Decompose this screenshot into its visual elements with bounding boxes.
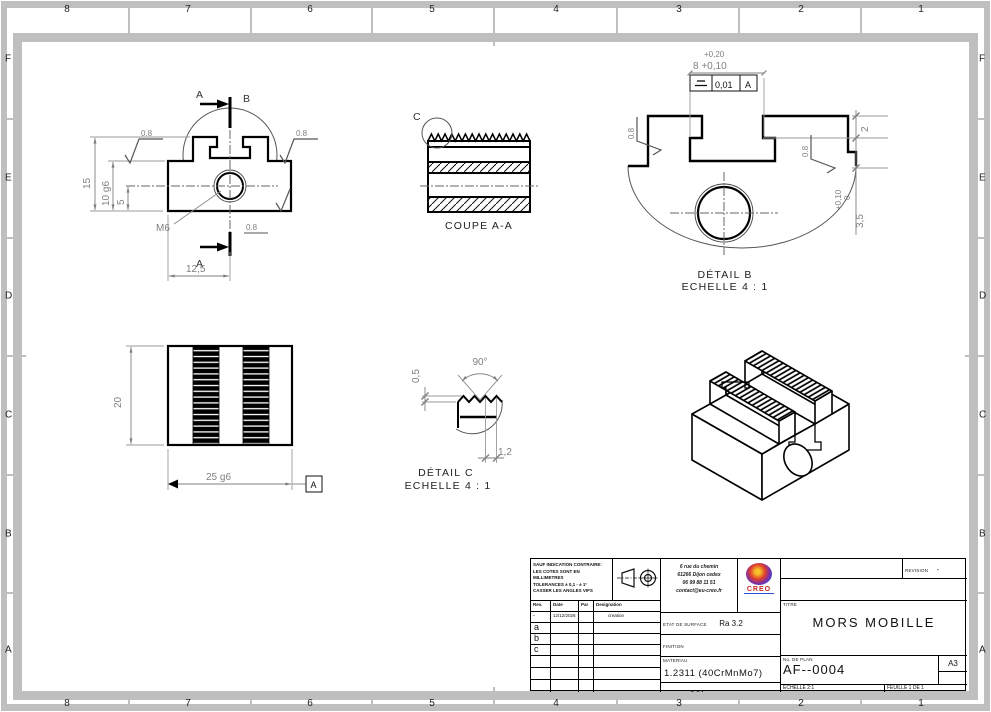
empty-cell [781,579,967,601]
serrated-band [193,347,219,444]
zone-number: 3 [676,4,682,15]
mass-cell: MASSE 0.04 [661,683,781,692]
rev-cell: 12/12/2026 [551,612,579,623]
logo-icon [746,563,772,585]
scale-cell: ECHELLE 2:1 [781,685,885,692]
zone-letter: D [979,291,986,302]
empty-cell [781,559,903,579]
view-coupe-aa: C COUPE A-A [400,100,575,240]
part-outline [168,346,292,445]
dim-12-5: 12,5 [186,264,206,275]
note-line: SAUF INDICATION CONTRAIRE: [533,562,610,569]
zone-number: 6 [307,698,313,709]
rev-cell [594,623,661,634]
company-line: 61266 Dijon cedex [661,571,737,579]
roughness-symbol: 0.8 [125,129,163,163]
rev-cell [531,680,551,692]
dim-12pitch: 1,2 [498,447,512,458]
zone-letter: A [979,645,986,656]
zone-letter: D [5,291,12,302]
view-scale-detail-c: ECHELLE 4 : 1 [405,480,492,492]
datum-triangle [168,480,178,489]
detail-c-label: C [413,111,421,123]
svg-text:0.8: 0.8 [246,223,258,232]
zone-letter: C [5,410,12,421]
rev-cell [594,634,661,645]
company-line: 06 99 88 11 51 [661,579,737,587]
rev-cell [594,656,661,668]
zone-number: 7 [185,698,191,709]
projection-symbol-cell [613,559,661,601]
dim-20: 20 [113,396,124,408]
svg-text:0.8: 0.8 [627,127,636,139]
view-detail-c: 90° 0,5 1,2 DÉTAIL C ECHELLE 4 : 1 [400,345,585,500]
mass-value: 0.04 [690,691,704,692]
serrated-band [243,347,269,444]
zone-letter: F [5,54,11,65]
rev-header: Date [551,601,579,612]
title-block: SAUF INDICATION CONTRAIRE: LES COTES SON… [530,558,966,691]
rev-cell: - [531,612,551,623]
material-label: MATERIAU [661,657,780,663]
datum-letter: A [311,480,317,490]
rev-cell [551,680,579,692]
zone-number: 6 [307,4,313,15]
zone-letter: A [5,645,12,656]
iso-part [692,351,849,500]
plan-cell: No. DE PLAN AF--0004 [781,656,939,685]
serration-profile [428,134,530,141]
zone-number: 3 [676,698,682,709]
rev-cell [551,656,579,668]
zone-number: 8 [64,4,70,15]
view-detail-b: +0,20 8 +0,10 0,01 A [600,40,900,300]
rev-cell: c [531,645,551,656]
dim-05: 0,5 [411,369,422,383]
material-cell: MATERIAU 1.2311 (40CrMnMo7) [661,657,781,683]
finish-cell: FINITION BRUNISSAGE [661,635,781,657]
zone-number: 7 [185,4,191,15]
rev-cell [551,668,579,680]
zone-number: 5 [429,4,435,15]
company-line: contact@eu-creo.fr [661,587,737,595]
company-line: 6 rue du chemin [661,563,737,571]
zone-letter: B [979,529,986,540]
hatch-band [428,197,530,211]
dim-25g6: 25 g6 [206,472,231,483]
rev-cell [531,668,551,680]
rev-cell [594,668,661,680]
feature-control-frame: 0,01 A [690,75,757,91]
surface-value: Ra 3.2 [719,619,743,628]
first-angle-projection-icon [613,559,659,599]
fcf-datum: A [745,80,751,90]
dim-35-tol-upper: +0,10 [834,189,843,210]
view-scale-detail-b: ECHELLE 4 : 1 [682,281,769,293]
rev-cell [579,623,594,634]
view-title-detail-c: DÉTAIL C [418,466,474,479]
svg-text:0.8: 0.8 [141,129,153,138]
rev-cell [579,668,594,680]
dim-35: 3,5 [855,214,866,228]
note-line: CASSER LES ANGLES VIFS [533,588,610,595]
rev-header: Rev. [531,601,551,612]
rev-cell [579,645,594,656]
revision-value: - [937,567,939,574]
logo-text: CREO [744,586,774,594]
dim-8: 8 +0,10 [693,61,727,72]
svg-text:0.8: 0.8 [296,129,308,138]
tolerance-notes: SAUF INDICATION CONTRAIRE: LES COTES SON… [531,559,613,601]
plan-number: AF--0004 [781,662,938,677]
rev-cell [551,623,579,634]
rev-cell: b [531,634,551,645]
zone-letter: E [5,173,12,184]
rev-cell [579,656,594,668]
zone-number: 4 [553,698,559,709]
thread-callout-m6: M6 [156,223,170,234]
title-cell: TITRE MORS MOBILLE [781,601,967,656]
rev-header: Par [579,601,594,612]
zone-number: 2 [798,4,804,15]
rev-header: Designation [594,601,661,612]
view-isometric [635,330,895,530]
note-line: LES COTES SONT EN MILLIMETRES [533,569,610,582]
zone-number: 5 [429,698,435,709]
zone-number: 4 [553,4,559,15]
title-label: TITRE [781,601,967,607]
surface-label: ETAT DE SURFACE [661,621,707,627]
extension-lines [486,398,497,463]
zone-number: 2 [798,698,804,709]
revision-cell: REVISION - [903,559,967,579]
dim-5: 5 [116,199,127,205]
revision-label: REVISION [903,567,928,573]
rev-cell [551,634,579,645]
rev-cell: creation [594,612,661,623]
sheet-cell: FEUILLE 1 DE 1 [885,685,967,692]
company-logo: CREO [738,559,781,613]
zone-number: 1 [918,698,924,709]
part-outline [628,116,856,166]
finish-label: FINITION [661,643,684,649]
rev-cell [579,680,594,692]
format-cell: A3 [939,656,967,672]
view-title-coupe: COUPE A-A [445,220,513,232]
dim-8-tol-upper: +0,20 [704,50,725,59]
zone-letter: F [979,54,985,65]
dim-2: 2 [860,126,871,132]
rev-cell [579,612,594,623]
dim-35-tol-lower: 0 [843,195,852,200]
dim-90deg: 90° [472,357,487,368]
zone-number: 8 [64,698,70,709]
serration-profile [458,396,502,402]
rev-cell [531,656,551,668]
zone-number: 1 [918,4,924,15]
company-info: 6 rue du chemin 61266 Dijon cedex 06 99 … [661,559,738,613]
zone-letter: B [5,529,12,540]
dim-10g6: 10 g6 [101,181,112,206]
drawing-title: MORS MOBILLE [781,615,967,630]
section-label-top: A [196,89,203,101]
rev-cell: a [531,623,551,634]
detail-b-label: B [243,93,250,105]
rev-cell [594,680,661,692]
rev-cell [551,645,579,656]
hatch-band [428,162,530,173]
view-title-detail-b: DÉTAIL B [697,268,752,281]
zone-letter: C [979,410,986,421]
dim-15: 15 [82,177,93,189]
view-front: A B A 15 10 g6 5 12,5 M6 0.8 0.8 [50,80,335,285]
zone-letter: E [979,173,986,184]
surface-cell: ETAT DE SURFACE Ra 3.2 [661,613,781,635]
material-value: 1.2311 (40CrMnMo7) [661,668,763,679]
rev-cell [579,634,594,645]
drawing-sheet: 8 7 6 5 4 3 2 1 8 7 6 5 4 3 2 1 F E D C … [0,0,991,712]
fcf-value: 0,01 [715,80,733,90]
view-top: 20 25 g6 A [90,340,335,500]
roughness-symbol: 0.8 [280,129,318,163]
rev-cell [594,645,661,656]
empty-cell [939,672,967,685]
centerlines [670,172,778,255]
svg-text:0.8: 0.8 [801,145,810,157]
